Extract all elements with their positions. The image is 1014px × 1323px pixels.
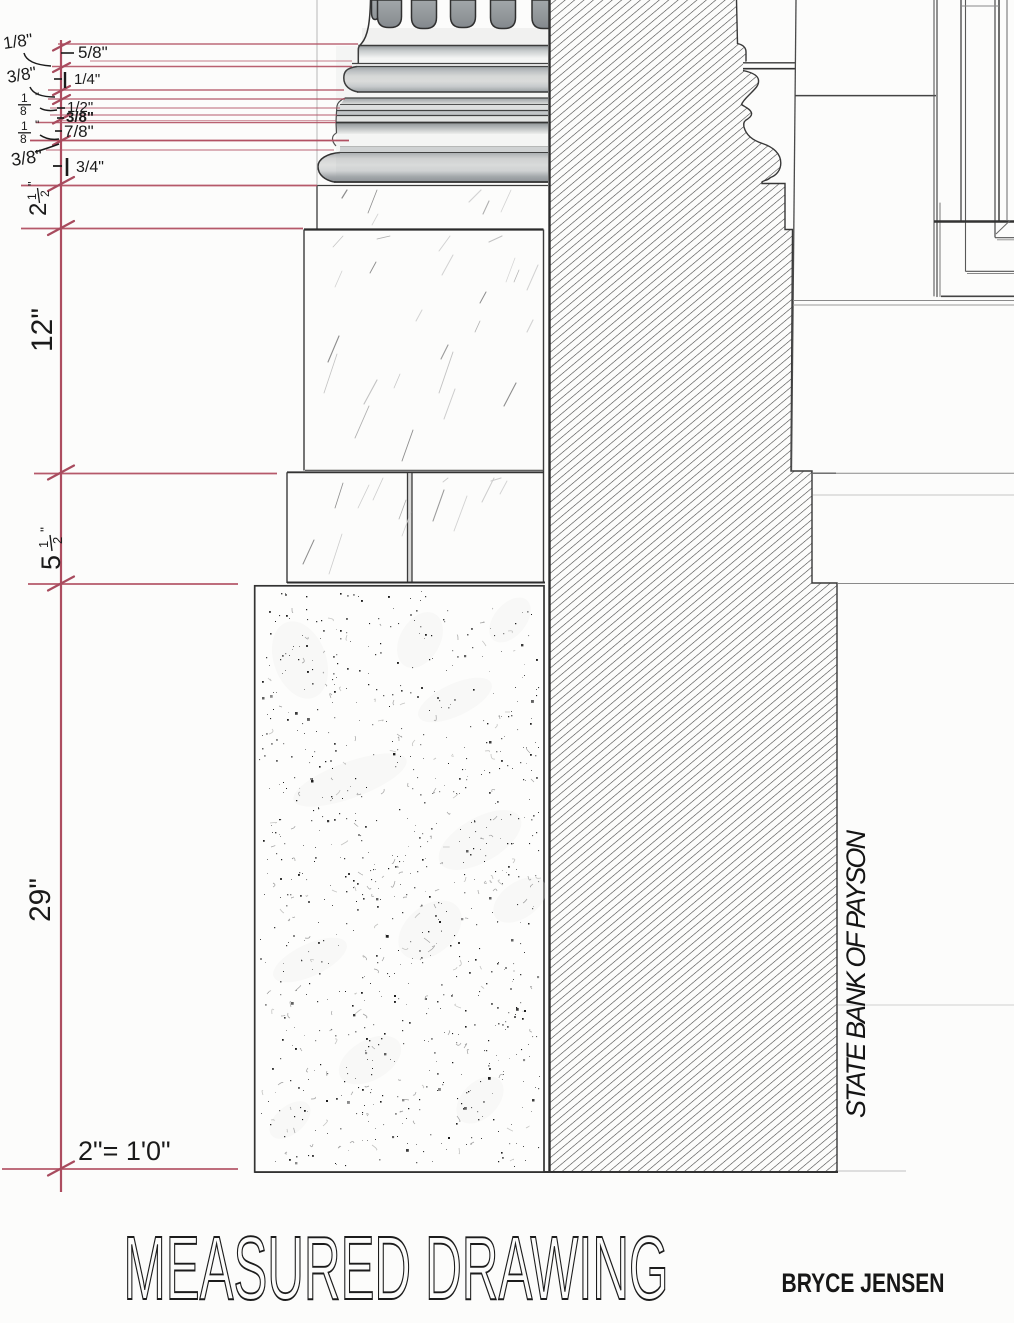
svg-text:BRYCE JENSEN: BRYCE JENSEN [782,1268,945,1298]
svg-text:1/4": 1/4" [74,71,100,88]
svg-text:1: 1 [21,119,28,133]
svg-text:": " [37,527,53,532]
svg-text:MEASURED DRAWING: MEASURED DRAWING [124,1219,669,1319]
svg-text:2: 2 [50,537,65,544]
svg-text:": " [25,181,40,186]
svg-text:2: 2 [38,190,52,197]
svg-text:5/8": 5/8" [78,43,108,62]
svg-text:2: 2 [25,203,52,216]
svg-text:1: 1 [25,193,39,200]
svg-text:": " [35,90,39,104]
svg-text:STATE BANK OF PAYSON: STATE BANK OF PAYSON [841,830,871,1119]
svg-text:8: 8 [20,104,27,118]
svg-text:7/8": 7/8" [64,122,94,141]
svg-text:3/4": 3/4" [76,159,104,176]
svg-text:": " [35,118,39,132]
svg-text:8: 8 [20,132,27,146]
svg-text:12": 12" [26,308,59,352]
svg-text:5: 5 [36,555,66,570]
svg-text:1: 1 [36,541,51,548]
svg-text:29": 29" [24,878,57,922]
svg-text:1: 1 [21,91,28,105]
svg-text:2"= 1'0": 2"= 1'0" [78,1136,171,1166]
